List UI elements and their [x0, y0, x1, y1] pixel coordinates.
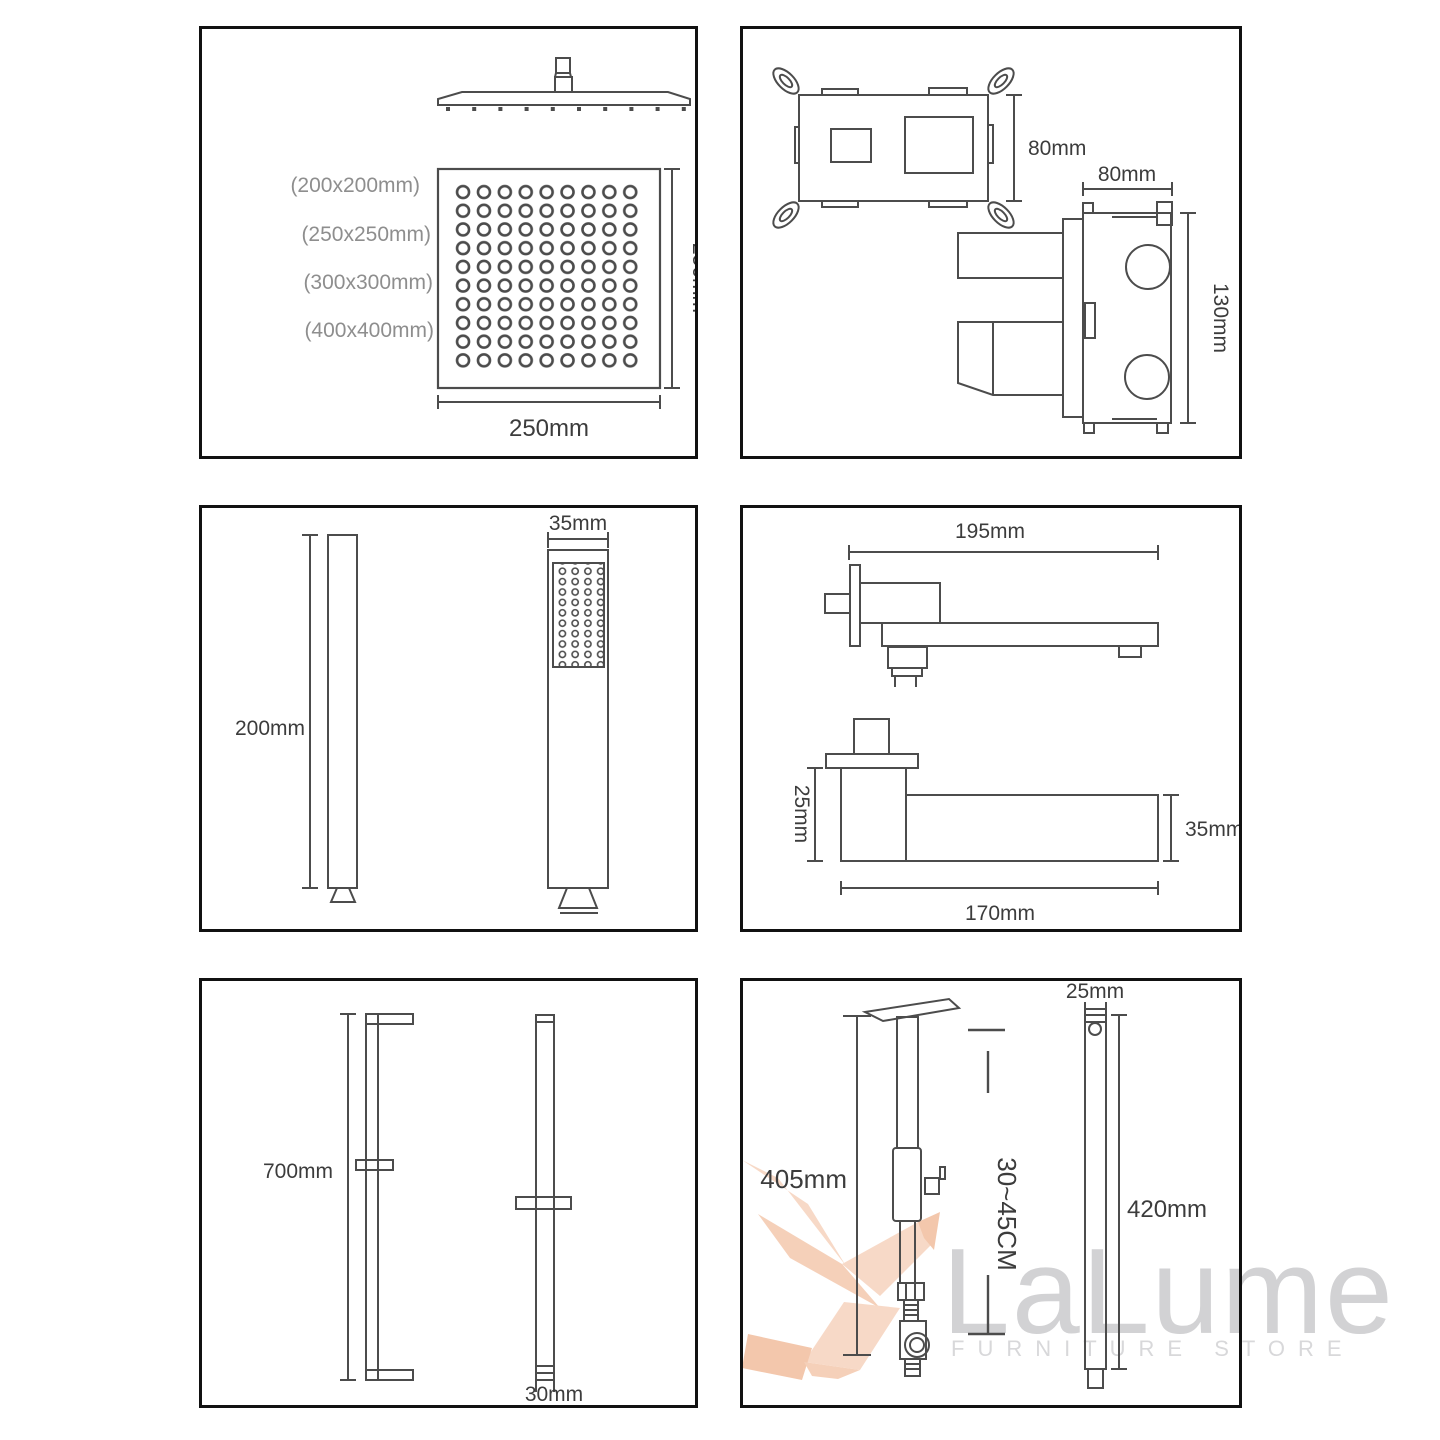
hand-shower-front-view	[548, 532, 608, 913]
slide-bar-side-view	[340, 1014, 413, 1380]
valve-box-drawing: 80mm 80mm 130mm	[743, 29, 1239, 456]
spout-top-view	[807, 719, 1179, 895]
size-option-3: (300x300mm)	[303, 271, 433, 294]
rain-shower-head-drawing: (200x200mm) (250x250mm) (300x300mm) (400…	[202, 29, 695, 456]
product-dimension-sheet: LaLume FURNITURE STORE	[0, 0, 1440, 1440]
slide-bar-front-view	[516, 1015, 571, 1392]
length-dimension-label: 700mm	[263, 1160, 333, 1183]
shower-head-side-view	[438, 58, 690, 109]
hand-shower-side-view	[302, 535, 357, 902]
telescopic-arm-view	[843, 999, 959, 1376]
valve-box-front-view	[769, 64, 1022, 232]
spout-side-view	[825, 545, 1158, 687]
spout-length-label: 195mm	[955, 520, 1025, 543]
length-dimension-label: 200mm	[235, 717, 305, 740]
size-option-1: (200x200mm)	[290, 174, 420, 197]
height-dimension-label: 250mm	[688, 243, 695, 313]
size-option-4: (400x400mm)	[304, 319, 434, 342]
straight-arm-view	[1085, 1002, 1127, 1388]
hand-shower-drawing: 200mm 35mm	[202, 508, 695, 929]
bar-length-label: 420mm	[1127, 1196, 1207, 1223]
bar-width-label: 25mm	[1066, 981, 1124, 1003]
width-dimension-label: 30mm	[525, 1383, 583, 1405]
front-height-label: 80mm	[1028, 137, 1086, 160]
adjust-range-label: 30~45CM	[992, 1157, 1022, 1270]
panel-ceiling-shower-arm: 405mm 30~45CM 25mm 420mm	[740, 978, 1242, 1408]
side-height-label: 130mm	[1209, 283, 1232, 353]
shower-head-front-view	[438, 169, 660, 388]
flange-height-label: 25mm	[790, 785, 813, 843]
side-width-label: 80mm	[1098, 163, 1156, 186]
body-length-label: 170mm	[965, 902, 1035, 925]
tub-spout-drawing: 195mm 25mm 35mm 170mm	[743, 508, 1239, 929]
panel-tub-spout: 195mm 25mm 35mm 170mm	[740, 505, 1242, 932]
ceiling-arm-drawing: 405mm 30~45CM 25mm 420mm	[743, 981, 1239, 1405]
width-dimension-label: 35mm	[549, 512, 607, 535]
slide-bar-drawing: 700mm 30mm	[202, 981, 695, 1405]
panel-valve-box: 80mm 80mm 130mm	[740, 26, 1242, 459]
arm-height-label: 35mm	[1185, 818, 1239, 841]
panel-hand-shower: 200mm 35mm	[199, 505, 698, 932]
panel-slide-bar: 700mm 30mm	[199, 978, 698, 1408]
size-option-2: (250x250mm)	[301, 223, 431, 246]
width-dimension-label: 250mm	[509, 415, 589, 442]
arm-length-label: 405mm	[760, 1164, 847, 1194]
panel-rain-shower-head: (200x200mm) (250x250mm) (300x300mm) (400…	[199, 26, 698, 459]
